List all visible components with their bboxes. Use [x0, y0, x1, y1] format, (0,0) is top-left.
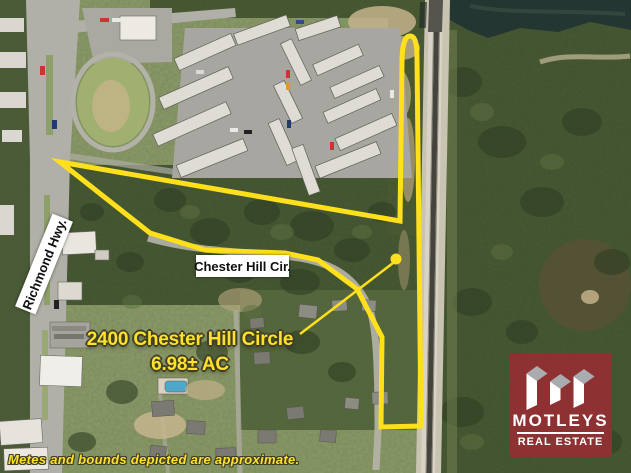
logo-subtitle: REAL ESTATE	[509, 436, 612, 448]
logo-name: MOTLEYS	[509, 412, 612, 429]
aerial-flyer: Richmond Hwy. Chester Hill Cir. 2400 Che…	[0, 0, 631, 473]
property-acreage: 6.98± AC	[70, 352, 310, 377]
property-title: 2400 Chester Hill Circle	[70, 327, 310, 352]
motleys-m-icon	[509, 357, 612, 415]
logo-divider	[517, 432, 604, 434]
property-label: 2400 Chester Hill Circle 6.98± AC	[70, 327, 310, 377]
motleys-logo: MOTLEYS REAL ESTATE	[509, 353, 612, 457]
road-label-chester-hill-cir: Chester Hill Cir.	[196, 255, 289, 277]
road-label-chester-hill-cir-text: Chester Hill Cir.	[194, 259, 291, 274]
disclaimer-text: Metes and bounds depicted are approximat…	[8, 452, 299, 467]
parcel-marker-dot	[391, 254, 402, 265]
railroad-bridge	[419, 0, 443, 32]
